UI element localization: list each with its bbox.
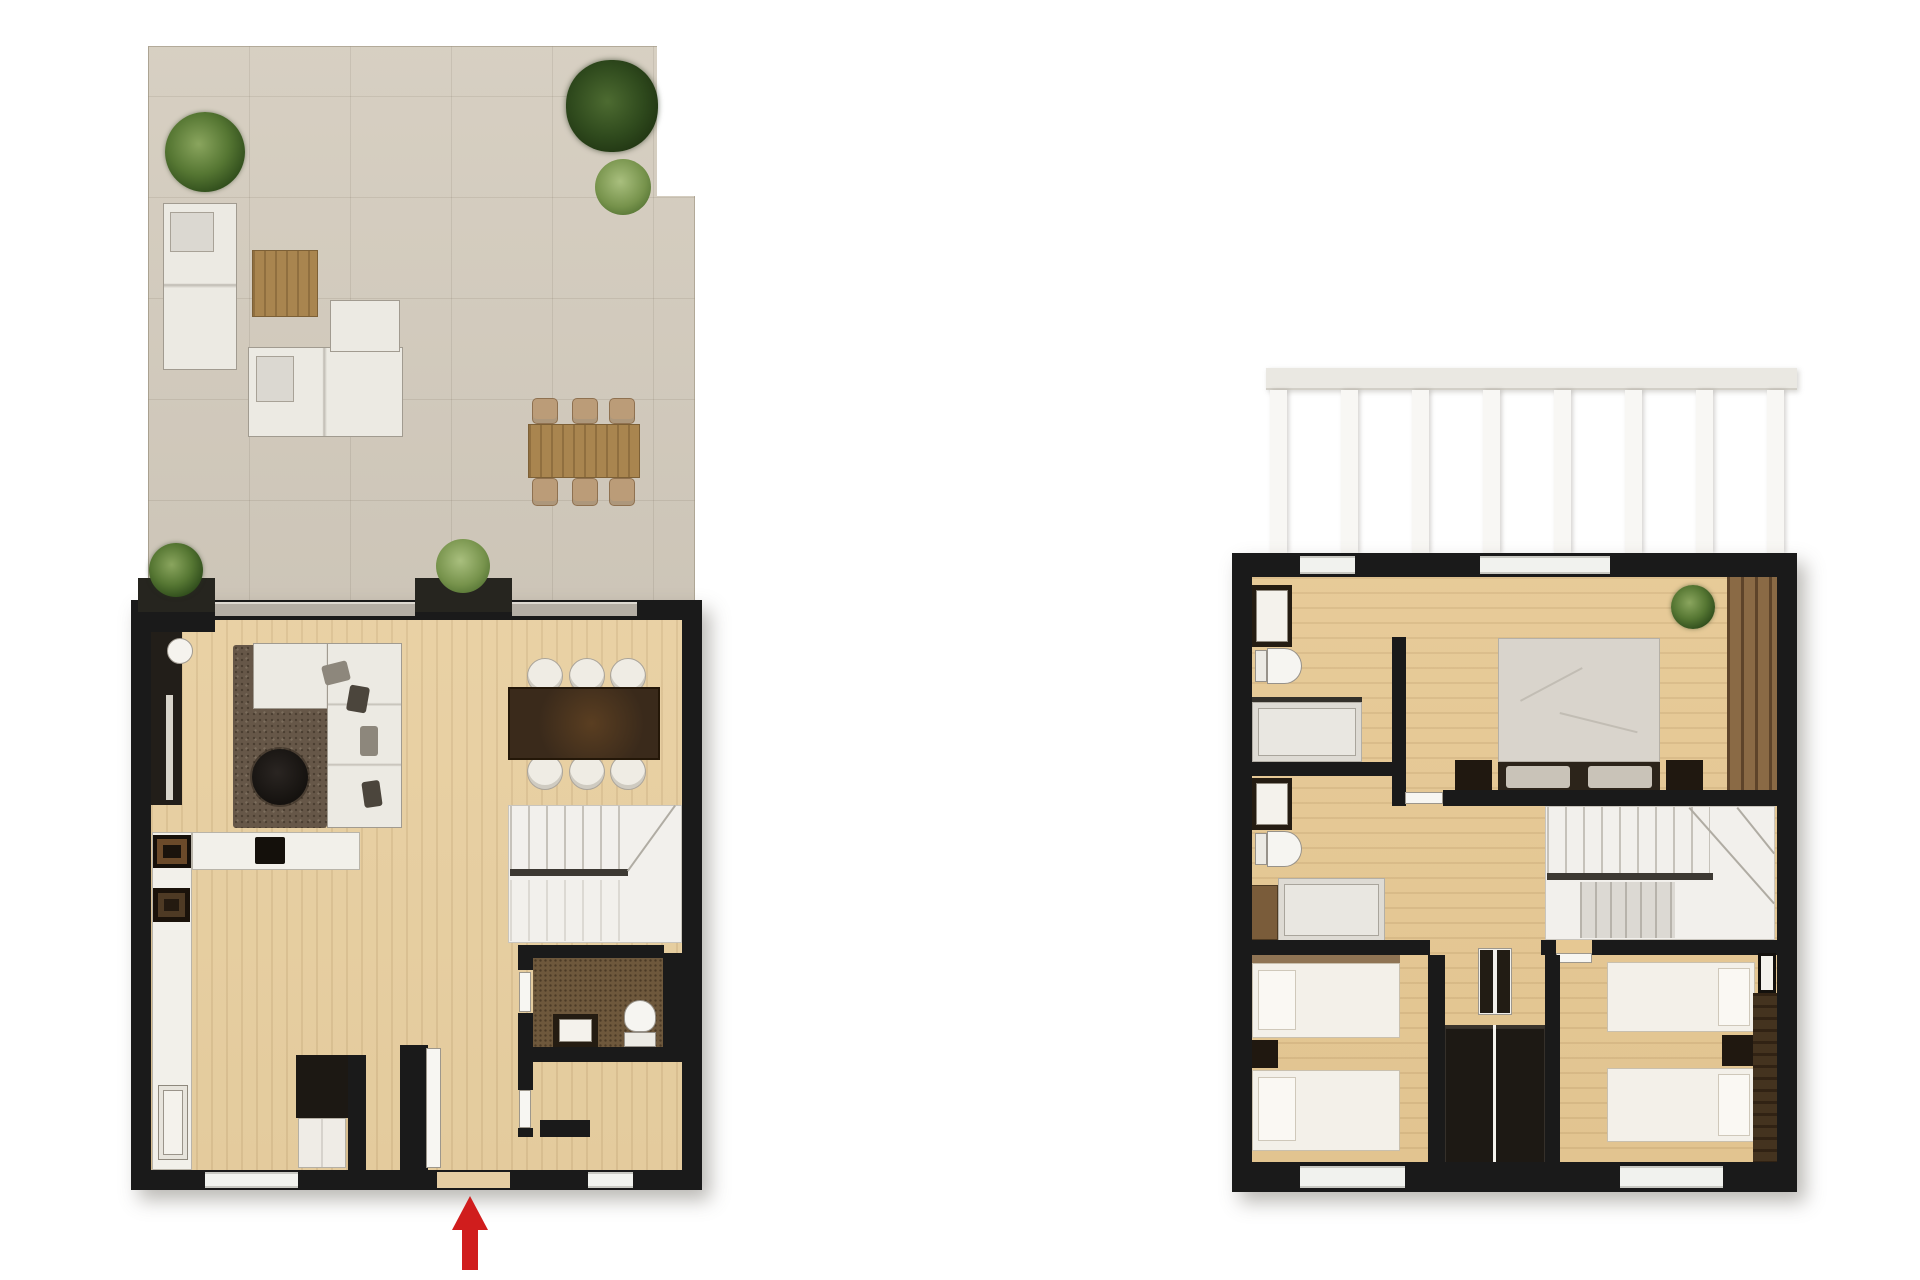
window [1480,556,1610,574]
window [1300,1166,1405,1188]
window [1300,556,1355,574]
outdoor-chair [532,398,558,424]
wall-window-frame [1758,953,1776,993]
terrace-ottoman [330,300,400,352]
bed-pillow [1258,970,1296,1030]
outdoor-chair [532,478,558,506]
entrance-wall-stub [348,1055,366,1170]
door-leaf [519,1090,531,1128]
terrace-plant [165,112,245,192]
wall-below-bathrooms [1232,940,1430,955]
toilet-tank [624,1032,656,1047]
nightstand [1666,760,1703,792]
toilet [1267,831,1302,867]
toilet [624,1000,656,1032]
window [1620,1166,1723,1188]
pergola-slat [1554,390,1571,553]
vanity-sink [1256,590,1288,642]
pergola-slat [1483,390,1500,553]
nightstand [1722,1035,1753,1066]
hall-partition [518,1128,533,1137]
pergola-slat [1767,390,1784,553]
dining-table [508,687,660,760]
round-coffee-table [252,749,308,805]
sofa-pillow [360,726,378,756]
shower-tray [1278,878,1385,942]
door-leaf [519,972,531,1012]
entrance-wardrobe [296,1055,348,1118]
nightstand [1455,760,1492,792]
pergola-slat [1412,390,1429,553]
ground-floor-plan [0,0,960,1280]
stair-treads-lower [510,880,628,941]
stair-treads-upper [1547,807,1710,873]
stair-rail [1547,873,1713,880]
bath-cabinet [1250,885,1278,940]
upper-floor-plan [960,0,1920,1280]
nightstand [1252,1040,1278,1068]
outdoor-dining-table [528,424,640,478]
bed-pillow [1718,968,1750,1026]
stair-treads-lower [1580,882,1675,938]
hall-wall [1392,637,1406,806]
master-wardrobe-band [1727,577,1777,790]
outdoor-chair [609,478,635,506]
bedroom-door-leaf [1556,953,1592,963]
bedroom-partition [1545,955,1560,1162]
pergola-slat [1696,390,1713,553]
duct-cell [1497,950,1510,1013]
outer-wall-right [1777,553,1797,1192]
terrace-plant-large [566,60,658,152]
stair-rail [510,869,628,876]
pergola-beam [1266,368,1797,390]
pergola-slat [1270,390,1287,553]
master-door-leaf [1405,792,1443,804]
window [205,1172,298,1188]
terrace-lounge-cushion [256,356,294,402]
bedroom-partition [1428,955,1445,1162]
island-cooktop [255,837,285,864]
wall-below-bathroom [523,1047,682,1062]
cooktop-square [153,888,190,922]
shower-tray [1252,702,1362,762]
storage-wall-stub [540,1120,590,1137]
bathroom-divider-wall [1250,762,1392,776]
floorplan-canvas [0,0,1920,1280]
entrance-arrow-head [452,1196,488,1230]
outdoor-chair [609,398,635,424]
wardrobe-divider [1493,1025,1496,1163]
oven [153,835,191,868]
entrance-door-leaf [426,1048,441,1168]
bathroom-sink [559,1019,592,1042]
pergola-slat [1341,390,1358,553]
terrace-sofa-cushion [170,212,214,252]
stair-treads-upper [510,806,628,870]
planter-plant [436,539,490,593]
pergola-slat [1625,390,1642,553]
terrace-window [512,602,637,616]
vanity-sink [1256,783,1288,825]
entrance-wardrobe-front [298,1118,346,1168]
entrance-arrow-shaft [462,1228,478,1270]
wall-below-master [1443,790,1777,806]
outer-wall-left [1232,553,1252,1192]
hall-partition [518,945,533,970]
window [588,1172,633,1188]
master-pillow [1506,766,1570,788]
terrace-slider-window [215,602,415,616]
outer-wall-left [131,600,151,1190]
toilet-tank [1255,650,1267,682]
terrace-coffee-table [252,250,318,317]
floor-lamp [167,638,193,664]
tv-screen [166,695,173,800]
bedroom-wardrobe-band [1753,993,1777,1162]
outdoor-chair [572,398,598,424]
sofa-pillow [361,780,382,808]
master-pillow [1588,766,1652,788]
duct-cell [1480,950,1493,1013]
kitchen-sink [158,1085,188,1160]
bathroom-side-wall [663,953,682,1050]
entrance-door-opening [437,1172,510,1188]
outdoor-chair [572,478,598,506]
bed-pillow [1258,1077,1296,1141]
entrance-door-wall [400,1045,428,1170]
bedroom-plant [1671,585,1715,629]
terrace-plant-small [595,159,651,215]
toilet [1267,648,1302,684]
planter-plant [149,543,203,597]
bed-pillow [1718,1074,1750,1136]
toilet-tank [1255,833,1267,865]
outer-wall-right [682,600,702,1190]
